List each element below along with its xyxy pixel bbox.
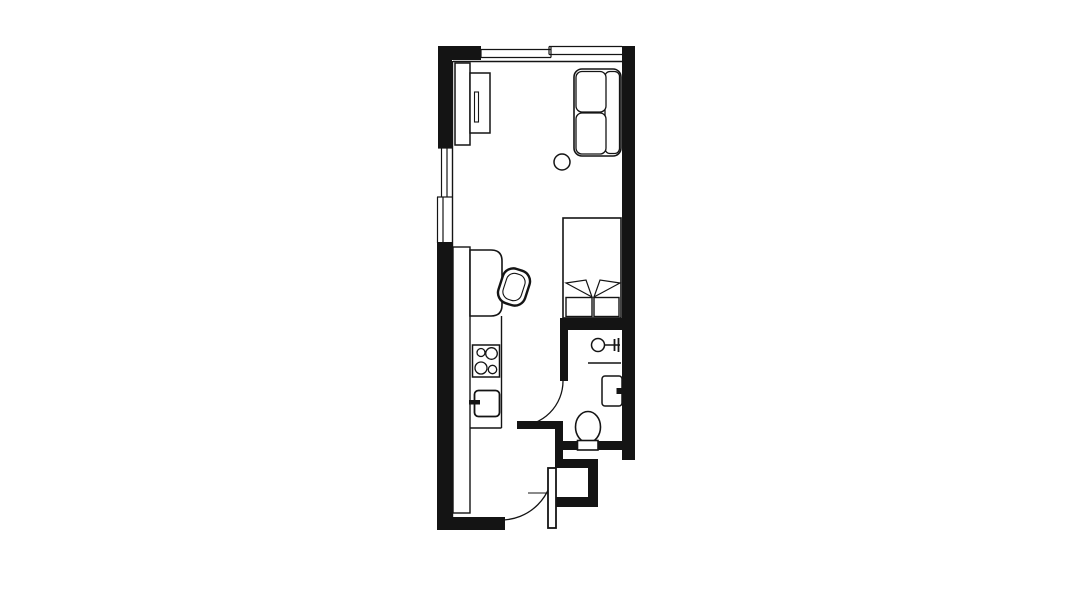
burner-bottom-left: [475, 362, 487, 374]
bathroom-door-arc: [518, 381, 563, 426]
wall-left-lower: [437, 242, 452, 530]
burner-top-right: [486, 348, 498, 360]
wall-bathroom-left: [560, 318, 568, 381]
wall-left-upper: [438, 46, 452, 148]
toilet-tank: [578, 441, 599, 451]
wall-bed-bathroom: [560, 318, 635, 330]
kitchen-counter: [453, 247, 470, 513]
floorplan-drawing: [0, 0, 1092, 614]
sofa-cushion-2: [576, 113, 606, 154]
shower-tab: [617, 388, 625, 394]
entry-door-arc: [501, 468, 553, 520]
sink-faucet: [469, 400, 480, 405]
toilet-bowl: [576, 412, 601, 443]
burner-top-left: [477, 349, 485, 357]
wall-bathroom-bottom: [563, 441, 635, 450]
wall-entry-step-bottom: [555, 497, 598, 507]
burner-bottom-right: [488, 365, 496, 373]
floorplan-page: [0, 0, 1092, 614]
bed-pillow-1: [566, 298, 592, 317]
entry-door-leaf: [548, 468, 556, 528]
side-table: [554, 154, 570, 170]
wardrobe-back: [455, 63, 470, 145]
wardrobe-slot: [475, 92, 479, 122]
sofa-backrest: [605, 72, 620, 154]
bed-pillow-2: [594, 298, 619, 317]
wall-right: [622, 46, 635, 460]
wall-bottom: [437, 517, 505, 530]
kitchen-desk: [470, 250, 502, 316]
sofa-cushion-1: [576, 72, 606, 113]
wardrobe-front: [470, 73, 490, 133]
basin: [592, 339, 605, 352]
wall-door-stub: [555, 429, 563, 462]
